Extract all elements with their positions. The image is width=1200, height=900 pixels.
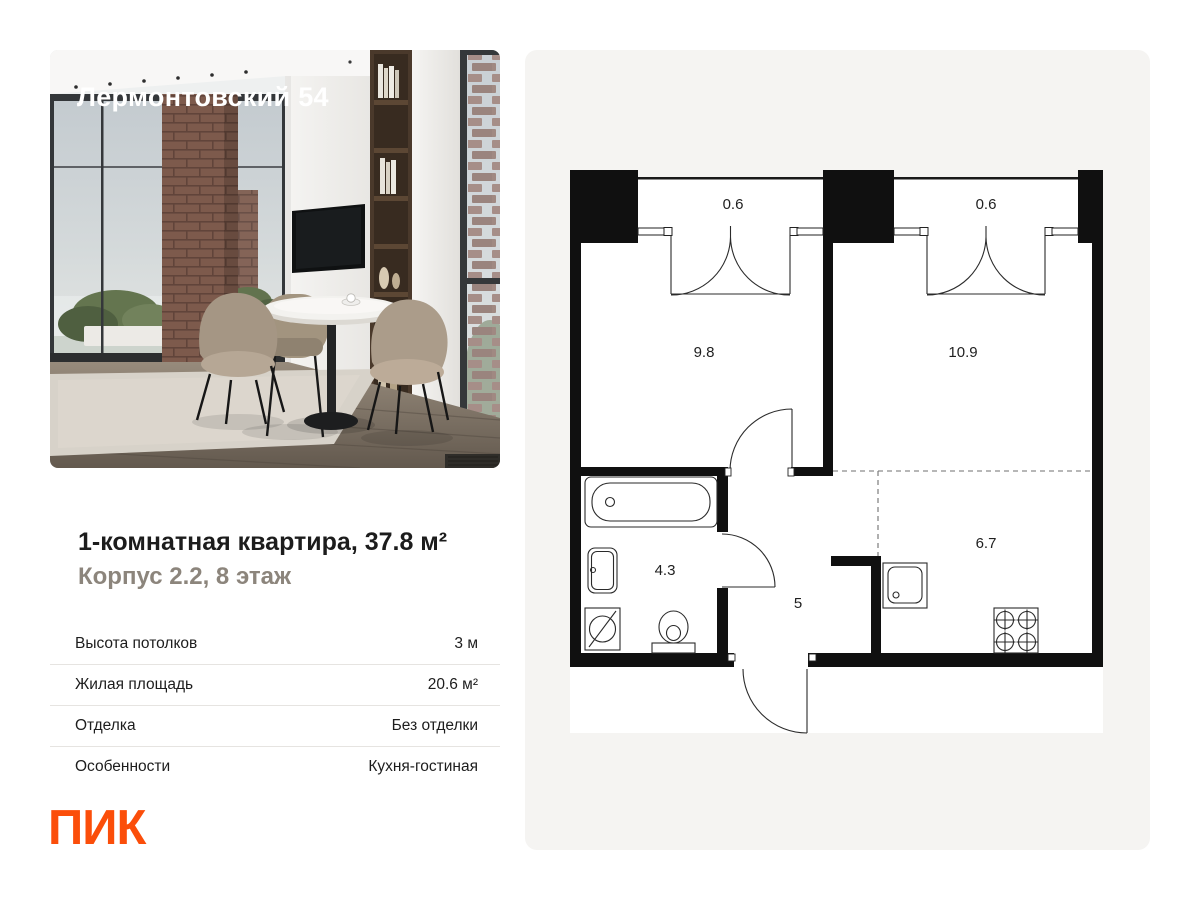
spec-row-features: Особенности Кухня-гостиная — [50, 746, 500, 787]
spec-label: Особенности — [50, 758, 170, 776]
spec-value: Без отделки — [392, 717, 500, 735]
floorplan-drawing: 0.6 0.6 9.8 10.9 4.3 5 6.7 — [525, 50, 1150, 850]
spec-value: 20.6 м² — [428, 676, 500, 694]
project-title-overlay: Лермонтовский 54 — [77, 82, 329, 113]
washing-machine-icon — [585, 608, 620, 650]
listing-subtitle: Корпус 2.2, 8 этаж — [78, 563, 291, 591]
spec-label: Высота потолков — [50, 635, 197, 653]
listing-page: Лермонтовский 54 1-комнатная квартира, 3… — [0, 0, 1200, 900]
spec-row-finishing: Отделка Без отделки — [50, 705, 500, 746]
photo-card: Лермонтовский 54 — [50, 50, 500, 468]
kitchen-sink-icon — [883, 563, 927, 608]
pik-logo: ПИК — [48, 804, 145, 853]
bathtub-icon — [585, 477, 717, 527]
spec-value: Кухня-гостиная — [368, 758, 500, 776]
spec-value: 3 м — [454, 635, 500, 653]
balcony-edge-left — [638, 177, 823, 180]
listing-title: 1-комнатная квартира, 37.8 м² — [78, 528, 447, 557]
spec-label: Отделка — [50, 717, 136, 735]
room-area-label-kitchen: 6.7 — [976, 535, 997, 552]
balcony-edge-right — [894, 177, 1078, 180]
room-area-label-bedroom: 9.8 — [694, 344, 715, 361]
spec-row-living-area: Жилая площадь 20.6 м² — [50, 664, 500, 705]
shadow — [361, 430, 453, 446]
room-area-label-balcony-left: 0.6 — [723, 196, 744, 213]
stove-icon — [994, 608, 1038, 653]
specs-table: Высота потолков 3 м Жилая площадь 20.6 м… — [50, 623, 500, 787]
room-area-label-living: 10.9 — [948, 344, 977, 361]
room-area-label-balcony-right: 0.6 — [976, 196, 997, 213]
spec-label: Жилая площадь — [50, 676, 193, 694]
room-area-label-bathroom: 4.3 — [655, 562, 676, 579]
room-area-label-hallway: 5 — [794, 595, 802, 612]
spec-row-ceiling-height: Высота потолков 3 м — [50, 623, 500, 664]
tv — [292, 204, 365, 273]
shadow — [192, 414, 284, 430]
sink-icon — [588, 548, 617, 593]
floorplan-panel: 0.6 0.6 9.8 10.9 4.3 5 6.7 — [525, 50, 1150, 850]
